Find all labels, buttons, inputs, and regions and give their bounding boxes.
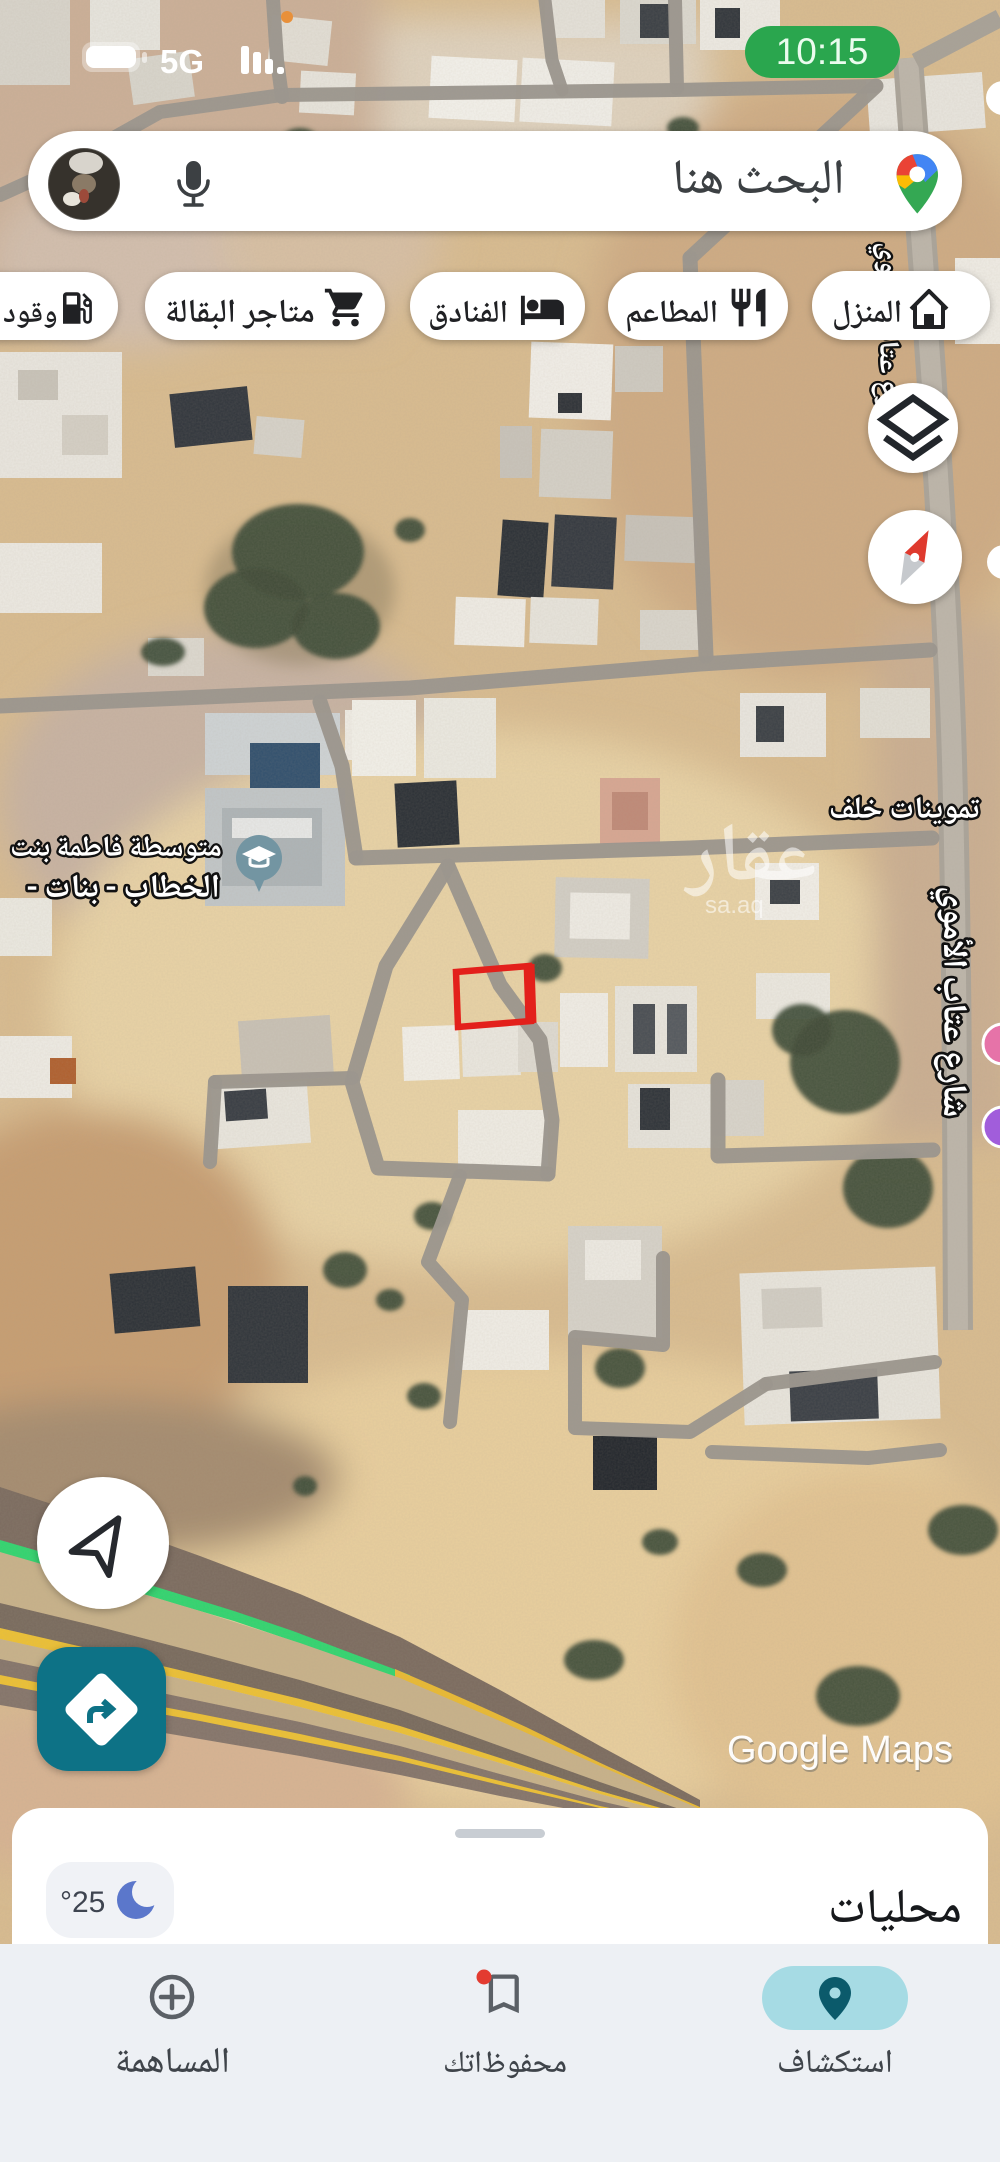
svg-text:sa.aq: sa.aq [705,892,764,919]
svg-text:Google Maps: Google Maps [727,1729,953,1771]
svg-text:5G: 5G [160,43,204,80]
svg-text:°25: °25 [60,1886,105,1919]
svg-text:10:15: 10:15 [776,31,869,72]
